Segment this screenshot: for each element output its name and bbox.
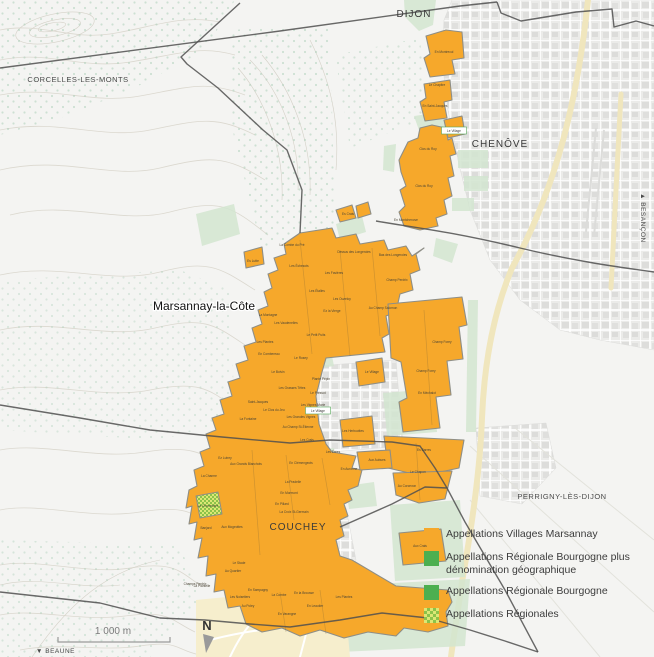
parcel-label: En Saint-Jacques xyxy=(423,104,448,108)
parcel-label: Bas des Longeroies xyxy=(379,253,408,257)
parcel-label: Les Plantes xyxy=(336,595,353,599)
parcel-label: Le Village xyxy=(365,370,379,374)
legend: Appellations Villages MarsannayAppellati… xyxy=(424,528,650,631)
legend-item: Appellations Régionales xyxy=(424,608,650,623)
parcel-label: En Mormont xyxy=(280,491,297,495)
label-marsannay: Marsannay-la-Côte xyxy=(153,299,255,313)
parcel-label: En Clémengeots xyxy=(289,461,313,465)
parcel-label: La Pradelle xyxy=(285,480,301,484)
parcel-label: Es Lutte xyxy=(247,259,259,263)
north-label: N xyxy=(202,618,211,633)
parcel-label: En Montrecul xyxy=(435,50,454,54)
parcel-label: Le Clos du Jeu xyxy=(263,408,284,412)
parcel-label: Le Pressot xyxy=(310,391,325,395)
legend-swatch-orange xyxy=(424,528,439,543)
parcel-label: Plante Pépin xyxy=(312,377,330,381)
parcel-label: Les Favières xyxy=(325,271,344,275)
parcel-label: Les Vignes Marie xyxy=(301,403,326,407)
parcel-label: Champ Forey xyxy=(432,340,452,344)
legend-item: Appellations Villages Marsannay xyxy=(424,528,650,543)
parcel-label: Les Ouzeloy xyxy=(333,297,351,301)
parcel-label: Banjard xyxy=(201,526,212,530)
legend-label: Appellations Villages Marsannay xyxy=(446,528,598,541)
parcel-label: Aux Aubues xyxy=(368,458,385,462)
legend-label: Appellations Régionale Bourgogne xyxy=(446,585,608,598)
parcel-label: Ez la Vierge xyxy=(323,309,340,313)
parcel-label: Les Grandes Vignes xyxy=(287,415,316,419)
parcel-label: Les Plantes xyxy=(257,340,274,344)
parcel-label: Au Champ Salomon xyxy=(369,306,398,310)
legend-item: Appellations Régionale Bourgogne plus dé… xyxy=(424,551,650,577)
label-perrigny: PERRIGNY-LÈS-DIJON xyxy=(517,492,606,501)
legend-swatch-green xyxy=(424,551,439,566)
parcel-label: Au Quartier xyxy=(225,569,242,573)
parcel-label: Le Petit Puits xyxy=(307,333,326,337)
besancon-direction-label: ▲ BESANÇON xyxy=(639,193,646,243)
parcel-label: Au Poley xyxy=(242,604,255,608)
parcel-label: Le Rosey xyxy=(294,356,308,360)
parcel-label: La Montagne xyxy=(259,313,278,317)
parcel-label: Les Herbuottes xyxy=(342,429,364,433)
parcel-label: Le Chapitre xyxy=(429,83,446,87)
label-corcelles: CORCELLES-LES-MONTS xyxy=(27,75,128,84)
parcel-label: La Combe xyxy=(272,593,287,597)
legend-swatch-green xyxy=(424,585,439,600)
beaune-direction-label: ▼ BEAUNE xyxy=(36,648,75,655)
parcel-label: Les Noisetiers xyxy=(230,595,251,599)
parcel-label: En Varangne xyxy=(278,612,297,616)
parcel-label: Les Échezots xyxy=(289,263,309,268)
parcel-label: La Chenevière xyxy=(198,504,219,508)
parcel-label: En Leautier xyxy=(307,604,324,608)
label-couchey: COUCHEY xyxy=(269,522,326,533)
label-chenove: CHENÔVE xyxy=(472,137,528,150)
legend-label: Appellations Régionales xyxy=(446,608,559,621)
parcel-label: Le Boivin xyxy=(271,370,284,374)
scale-label: 1 000 m xyxy=(95,626,131,637)
parcel-label: La Fontaine xyxy=(240,417,257,421)
parcel-label: Dessus des Longeroies xyxy=(337,250,371,254)
parcel-label: Clos du Roy xyxy=(415,184,433,188)
parcel-label: Saint-Jacques xyxy=(248,400,269,404)
parcel-label: Au Champ St-Étienne xyxy=(283,424,314,429)
legend-swatch-checker xyxy=(424,608,439,623)
parcel-label: Les Grasses Têtes xyxy=(279,386,306,390)
parcel-label: Es Crais xyxy=(342,212,354,216)
parcel-label: Aux Grands Blanchots xyxy=(230,462,262,466)
parcel-label: Ez Lutrey xyxy=(218,456,232,460)
parcel-label: En la Brousse xyxy=(294,591,314,595)
parcel-label: En Montchenove xyxy=(394,218,418,222)
parcel-label: Clos du Roy xyxy=(419,147,437,151)
parcel-label: La Charme xyxy=(201,474,217,478)
parcel-label: En Sampagny xyxy=(248,588,268,592)
label-dijon: DIJON xyxy=(397,9,432,20)
parcel-label: Les Étalles xyxy=(309,288,325,293)
parcel-label: La Combe du Pré xyxy=(280,243,305,247)
parcel-label: En Combereau xyxy=(258,352,280,356)
parcel-label: Les Érées xyxy=(326,449,341,454)
village-label: Le Village xyxy=(311,409,325,413)
parcel-label: Aux Mogeottes xyxy=(221,525,243,529)
parcel-label: Les Crais xyxy=(300,438,314,442)
parcel-label: Le Chapon xyxy=(410,470,426,474)
parcel-label: La Plantelle xyxy=(194,584,211,588)
parcel-label: En Auronne xyxy=(341,467,358,471)
village-label: Le Village xyxy=(447,129,461,133)
legend-item: Appellations Régionale Bourgogne xyxy=(424,585,650,600)
parcel-label: La Croix St-Germain xyxy=(279,510,308,514)
parcel-label: Champ Perdrix xyxy=(386,278,408,282)
parcel-label: Champ Forey xyxy=(416,369,436,373)
map-canvas: En MontreculLe ChapitreEn Saint-JacquesC… xyxy=(0,0,654,657)
parcel-label: Au Corcevon xyxy=(398,484,417,488)
parcel-label: En Pillard xyxy=(275,502,289,506)
parcel-label: Le Stade xyxy=(233,561,246,565)
parcel-label: En Méchalot xyxy=(418,391,436,395)
parcel-label: Es Barres xyxy=(417,448,431,452)
parcel-label: Les Vaudenelles xyxy=(274,321,298,325)
legend-label: Appellations Régionale Bourgogne plus dé… xyxy=(446,551,650,577)
